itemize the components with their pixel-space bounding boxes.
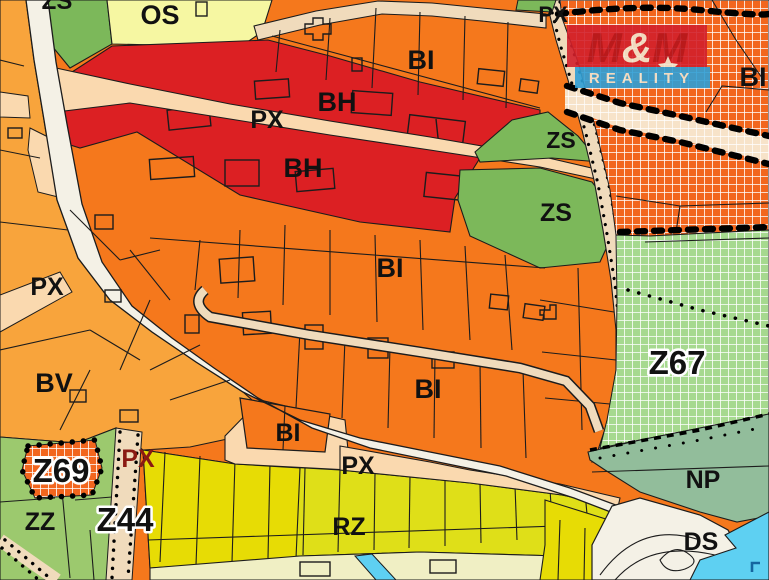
label-bv: BV xyxy=(35,368,73,398)
label-zs-top-cut: ZS xyxy=(42,0,73,15)
label-px-left: PX xyxy=(30,273,64,301)
label-zz: ZZ xyxy=(25,508,56,536)
label-bi-top: BI xyxy=(408,45,435,75)
label-bi-small: BI xyxy=(276,419,301,447)
zone-yellow-west xyxy=(143,450,300,568)
label-px-top-right: PX xyxy=(538,2,568,27)
zoning-map: ZS OS BI PX BI BH PX BH ZS ZS BI PX BV B… xyxy=(0,0,769,580)
label-bi-middle-2: BI xyxy=(415,374,442,404)
label-np: NP xyxy=(686,466,721,494)
label-bi-right: BI xyxy=(740,62,767,92)
label-zs-big: ZS xyxy=(540,199,572,227)
label-os: OS xyxy=(140,0,179,30)
label-z69: Z69 xyxy=(33,452,90,489)
label-z44: Z44 xyxy=(97,501,155,538)
label-px-red-zone: PX xyxy=(250,106,284,134)
label-rz: RZ xyxy=(332,513,365,541)
label-ds: DS xyxy=(684,528,719,556)
watermark-logo: M&M REALITY xyxy=(567,24,710,88)
zoning-map-canvas: ZS OS BI PX BI BH PX BH ZS ZS BI PX BV B… xyxy=(0,0,769,580)
label-zs-small: ZS xyxy=(546,127,575,153)
label-bi-middle: BI xyxy=(377,253,404,283)
zone-px-west xyxy=(0,92,30,118)
label-px-bottom: PX xyxy=(341,452,375,480)
label-bh-upper: BH xyxy=(318,87,357,117)
label-bh-lower: BH xyxy=(284,153,323,183)
label-z67: Z67 xyxy=(649,344,706,381)
zone-z67 xyxy=(600,230,769,448)
label-px-dark-red: PX xyxy=(121,445,155,473)
logo-reality-text: REALITY xyxy=(589,70,695,87)
zone-os xyxy=(107,0,272,47)
